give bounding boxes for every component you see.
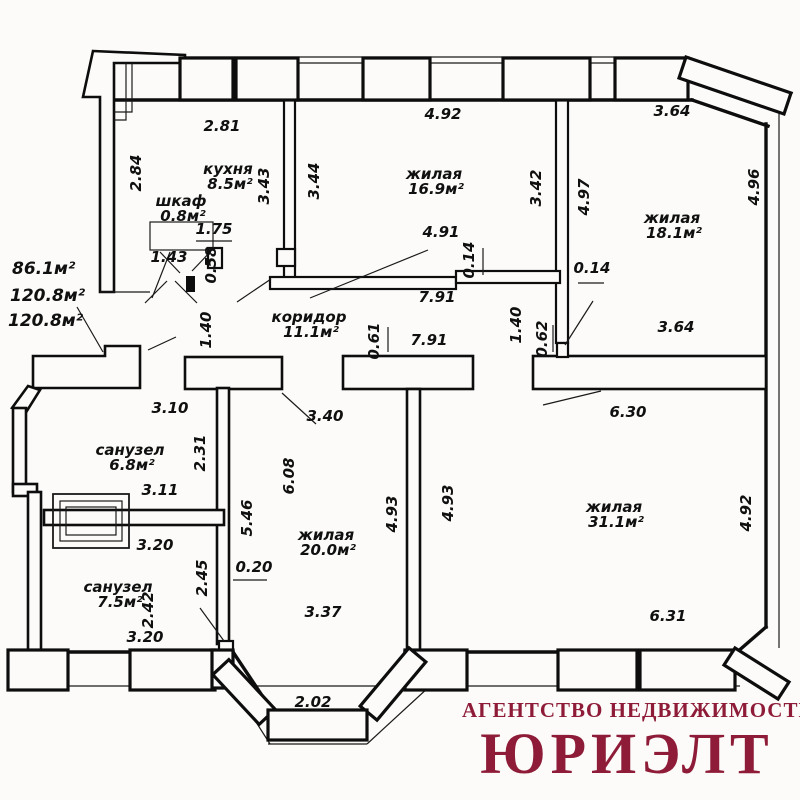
dimension-label: 4.93: [439, 484, 457, 522]
dimension-label: 0.62: [533, 320, 551, 357]
dimension-label: 0.14: [573, 259, 610, 277]
dimension-label: 1.75: [195, 220, 232, 238]
dimension-label: 3.20: [136, 536, 173, 554]
agency-logo-subtitle: АГЕНТСТВО НЕДВИЖИМОСТИ: [462, 698, 792, 723]
dimension-label: 1.40: [507, 306, 525, 343]
left-wall-structure: [12, 51, 185, 652]
dimension-label: 2.31: [191, 434, 209, 471]
dimension-label: 2.42: [139, 591, 157, 628]
dimension-label: 3.11: [141, 481, 178, 499]
room-area-label: 7.5м²: [97, 593, 143, 611]
room-area-label: 31.1м²: [588, 513, 644, 531]
dimension-label: 6.30: [609, 403, 646, 421]
room-area-label: 20.0м²: [300, 541, 356, 559]
floor-plan-page: 86.1м²120.8м²120.8м² кухня8.5м²шкаф0.8м²…: [0, 0, 800, 800]
dimension-label: 3.10: [151, 399, 188, 417]
dimension-label: 3.42: [527, 169, 545, 206]
dimension-label: 2.02: [294, 693, 331, 711]
dimension-label: 4.93: [383, 495, 401, 533]
dimension-label: 7.91: [418, 288, 455, 306]
dimension-label: 6.31: [649, 607, 686, 625]
dimension-label: 4.92: [423, 105, 461, 123]
room-area-label: 6.8м²: [109, 456, 155, 474]
floor-plan-drawing: 86.1м²120.8м²120.8м² кухня8.5м²шкаф0.8м²…: [0, 0, 800, 800]
dimension-label: 3.40: [306, 407, 343, 425]
dimension-label: 2.81: [203, 117, 240, 135]
dimension-label: 5.46: [238, 499, 256, 536]
dimension-label: 3.64: [657, 318, 694, 336]
total-area-label: 86.1м²: [12, 259, 76, 279]
dimension-label: 2.84: [127, 154, 145, 191]
door-swings: [100, 250, 601, 641]
dimension-label: 0.14: [460, 241, 478, 278]
agency-logo: АГЕНТСТВО НЕДВИЖИМОСТИ ЮРИЭЛТ: [462, 698, 792, 783]
dimension-label: 3.43: [255, 167, 273, 204]
total-area-label: 120.8м²: [8, 311, 84, 331]
room-area-label: 16.9м²: [408, 180, 464, 198]
room-area-label: 11.1м²: [283, 323, 339, 341]
dimension-label: 0.20: [235, 558, 272, 576]
dimension-label: 4.91: [421, 223, 459, 241]
dimension-label: 4.92: [737, 494, 755, 532]
dimension-label: 3.37: [304, 603, 342, 621]
dimension-label: 7.91: [410, 331, 447, 349]
dimension-label: 0.58: [202, 246, 220, 283]
dimension-label: 1.43: [150, 248, 187, 266]
agency-logo-title: ЮРИЭЛТ: [462, 725, 792, 783]
dimension-label: 1.40: [197, 311, 215, 348]
room-area-label: 18.1м²: [646, 224, 702, 242]
total-area-label: 120.8м²: [10, 286, 86, 306]
room-area-label: 8.5м²: [207, 175, 253, 193]
dimension-label: 3.64: [653, 102, 690, 120]
dimension-label: 4.96: [745, 168, 763, 206]
dimension-label: 3.20: [126, 628, 163, 646]
windows: [8, 57, 791, 740]
dimension-label: 2.45: [193, 559, 211, 596]
dimension-label: 6.08: [280, 457, 298, 494]
total-area-labels: 86.1м²120.8м²120.8м²: [8, 259, 86, 331]
dimension-label: 0.61: [365, 322, 383, 359]
dimension-label: 4.97: [575, 178, 593, 217]
dimension-label: 3.44: [305, 162, 323, 199]
